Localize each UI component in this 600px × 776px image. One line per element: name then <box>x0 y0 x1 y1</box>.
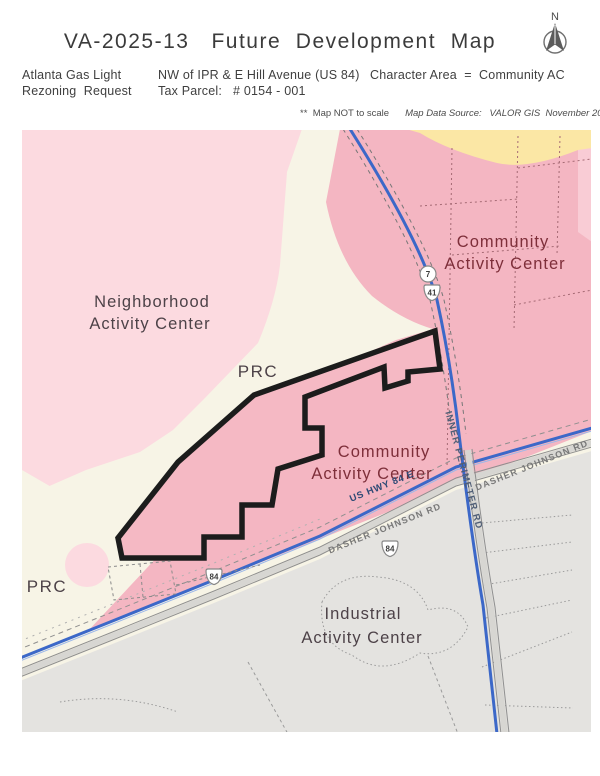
label-community-center-line1: Community <box>338 443 430 461</box>
north-arrow-label: N <box>551 11 559 23</box>
label-community-right-line2: Activity Center <box>444 255 565 273</box>
document-page: VA-2025-13 Future Development Map Atlant… <box>0 0 600 776</box>
request-type: Rezoning Request <box>22 84 132 98</box>
shield-route-41-label: 41 <box>428 289 437 298</box>
future-development-map: Neighborhood Activity Center PRC PRC Com… <box>0 128 600 736</box>
tax-parcel: Tax Parcel: # 0154 - 001 <box>158 84 306 98</box>
shield-route-84-east-label: 84 <box>386 545 395 554</box>
label-neighborhood-line2: Activity Center <box>89 315 210 333</box>
shield-route-84-west-label: 84 <box>210 573 219 582</box>
note-source: Map Data Source: VALOR GIS November 2025 <box>405 108 600 119</box>
label-community-center-line2: Activity Center <box>311 465 432 483</box>
applicant-name: Atlanta Gas Light <box>22 68 121 82</box>
location-description: NW of IPR & E Hill Avenue (US 84) <box>158 68 360 82</box>
shield-route-7: 7 <box>420 266 436 282</box>
label-prc-lower: PRC <box>27 577 67 596</box>
character-area: Character Area = Community AC <box>370 68 565 82</box>
map-note: ** Map NOT to scaleMap Data Source: VALO… <box>300 108 600 119</box>
region-small-pink-patch <box>65 543 109 587</box>
note-scale: Map NOT to scale <box>313 108 389 119</box>
label-industrial-line2: Activity Center <box>301 629 422 647</box>
label-prc-upper: PRC <box>238 362 278 381</box>
map-area: Neighborhood Activity Center PRC PRC Com… <box>0 128 600 741</box>
label-community-right-line1: Community <box>457 233 549 251</box>
label-industrial-line1: Industrial <box>325 605 402 623</box>
region-right-edge-strip <box>578 148 592 242</box>
shield-route-7-label: 7 <box>426 270 431 279</box>
page-title: VA-2025-13 Future Development Map <box>55 30 505 54</box>
label-neighborhood-line1: Neighborhood <box>94 293 210 311</box>
note-asterisks: ** <box>300 108 307 119</box>
north-arrow: N <box>532 6 578 62</box>
